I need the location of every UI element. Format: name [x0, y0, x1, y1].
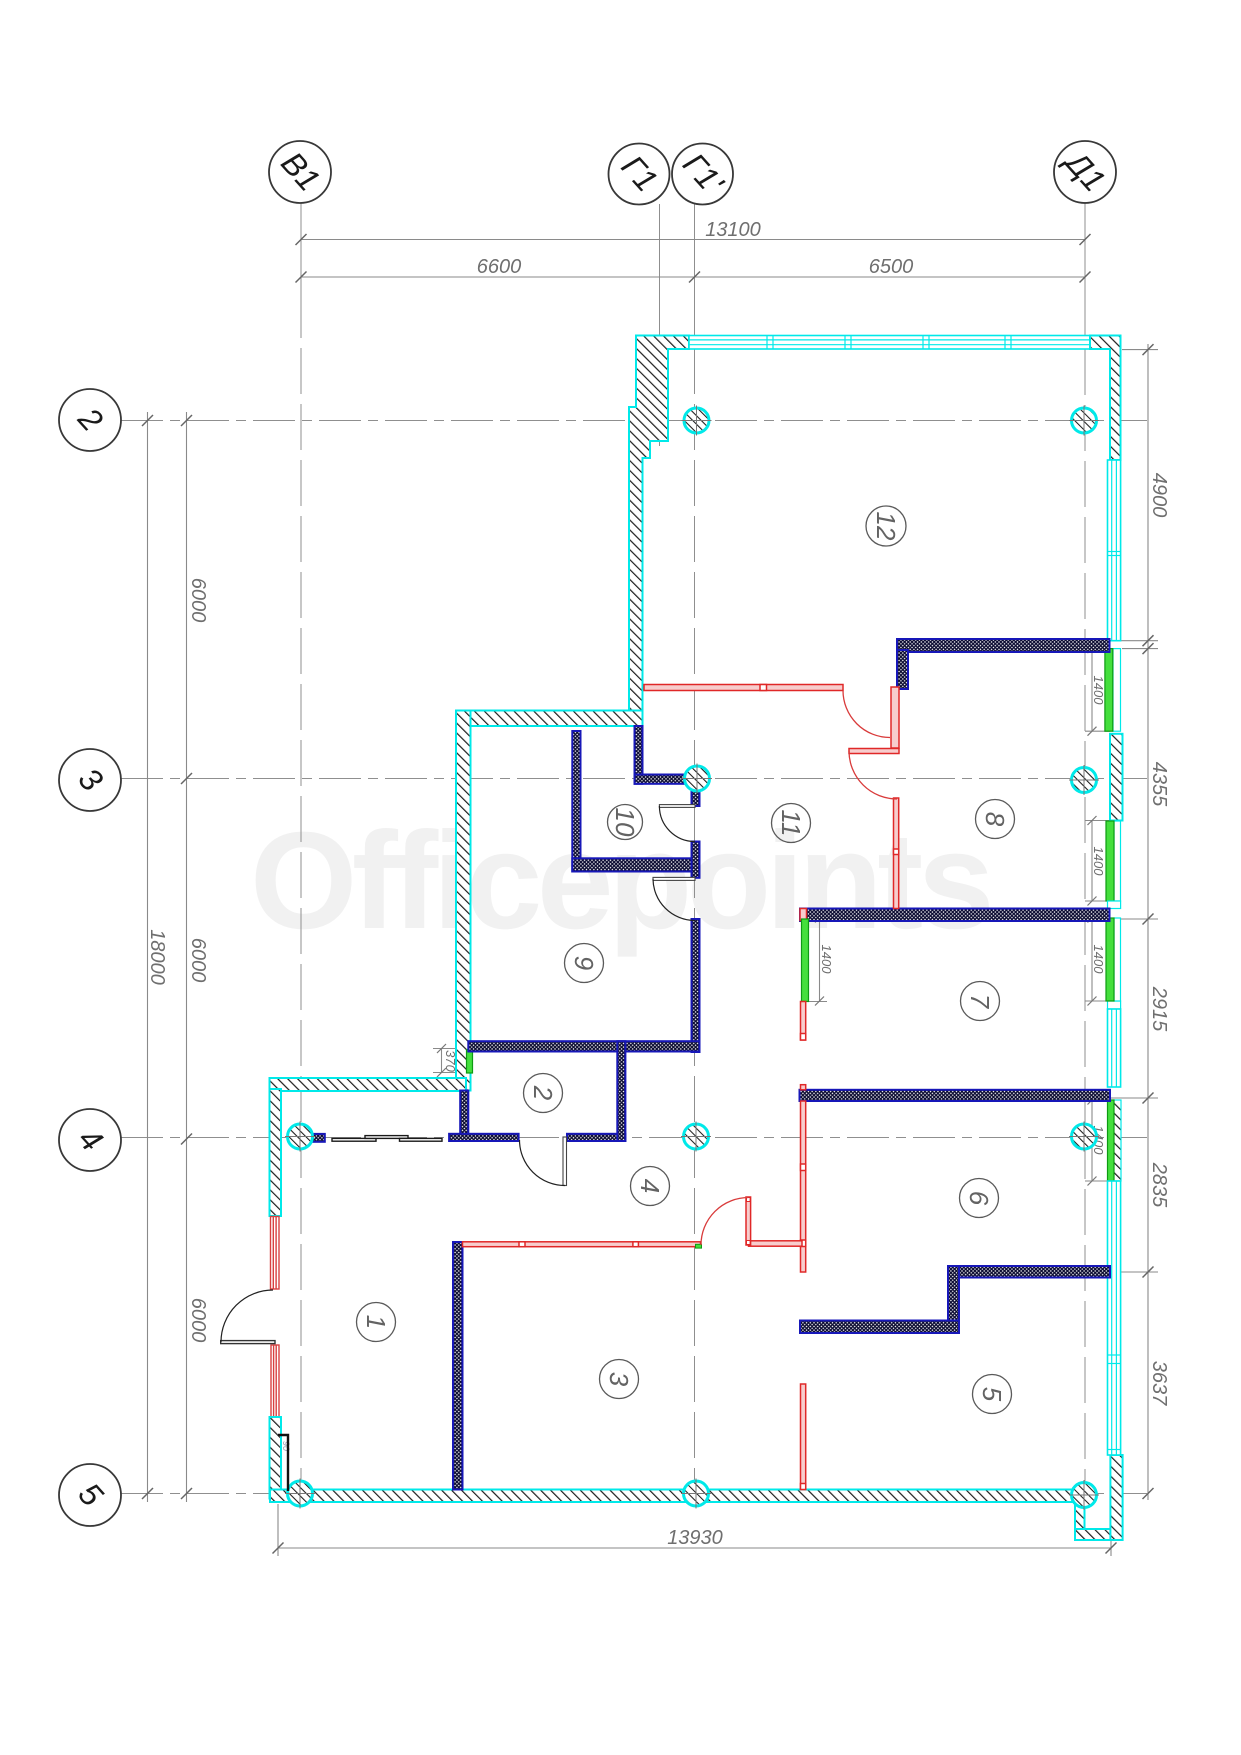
- svg-text:6: 6: [964, 1191, 994, 1206]
- svg-text:2: 2: [528, 1085, 558, 1101]
- svg-text:12: 12: [871, 512, 901, 541]
- svg-text:6000: 6000: [187, 1298, 209, 1343]
- svg-text:7: 7: [965, 994, 995, 1010]
- svg-text:6500: 6500: [869, 256, 914, 278]
- svg-text:1400: 1400: [1091, 945, 1106, 975]
- svg-text:6000: 6000: [187, 938, 209, 983]
- svg-text:2835: 2835: [1148, 1162, 1170, 1208]
- svg-text:13930: 13930: [667, 1527, 723, 1549]
- svg-text:8: 8: [980, 812, 1010, 827]
- svg-text:13100: 13100: [705, 219, 761, 241]
- svg-text:6000: 6000: [187, 578, 209, 623]
- svg-text:4: 4: [635, 1179, 665, 1193]
- svg-text:1400: 1400: [1091, 676, 1106, 706]
- svg-text:5: 5: [977, 1387, 1007, 1402]
- svg-text:3637: 3637: [1148, 1361, 1170, 1406]
- svg-text:4900: 4900: [1148, 473, 1170, 518]
- svg-text:9: 9: [569, 956, 599, 970]
- svg-text:2915: 2915: [1148, 986, 1170, 1032]
- svg-text:1400: 1400: [819, 945, 834, 975]
- svg-text:4355: 4355: [1148, 762, 1170, 807]
- svg-text:11: 11: [776, 810, 806, 837]
- svg-text:1400: 1400: [1091, 847, 1106, 877]
- svg-text:10: 10: [610, 808, 640, 837]
- svg-text:3: 3: [604, 1372, 634, 1387]
- svg-text:6600: 6600: [477, 256, 522, 278]
- svg-text:90: 90: [281, 1441, 291, 1451]
- svg-text:18000: 18000: [146, 929, 168, 985]
- svg-text:1: 1: [361, 1315, 391, 1329]
